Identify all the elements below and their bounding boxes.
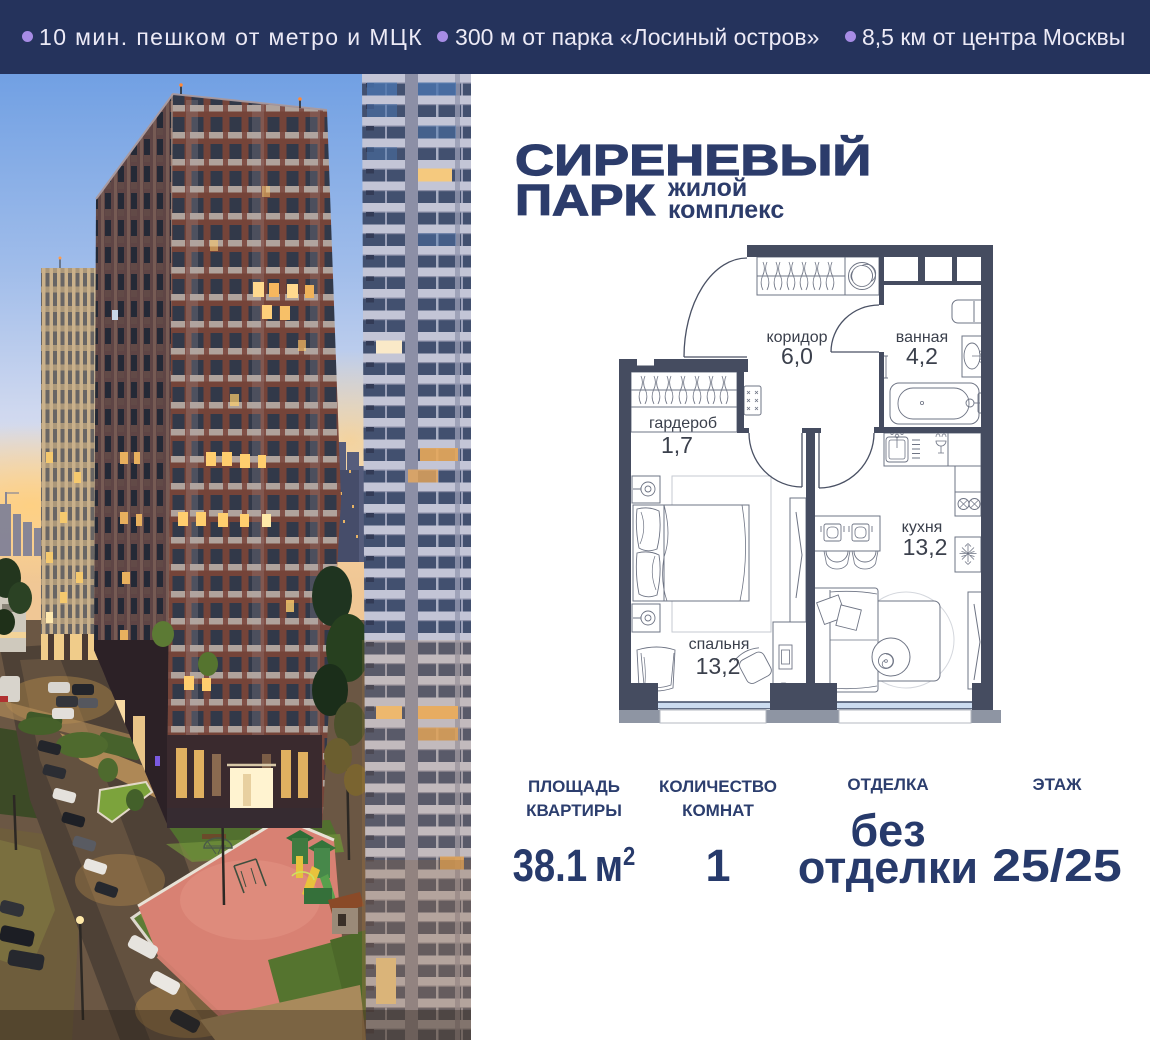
svg-text:1,7: 1,7 <box>661 432 693 458</box>
svg-text:спальня: спальня <box>689 636 750 653</box>
svg-text:13,2: 13,2 <box>696 653 741 679</box>
svg-text:4,2: 4,2 <box>906 343 938 369</box>
svg-text:гардероб: гардероб <box>649 415 717 432</box>
svg-text:13,2: 13,2 <box>903 534 948 560</box>
svg-text:6,0: 6,0 <box>781 343 813 369</box>
